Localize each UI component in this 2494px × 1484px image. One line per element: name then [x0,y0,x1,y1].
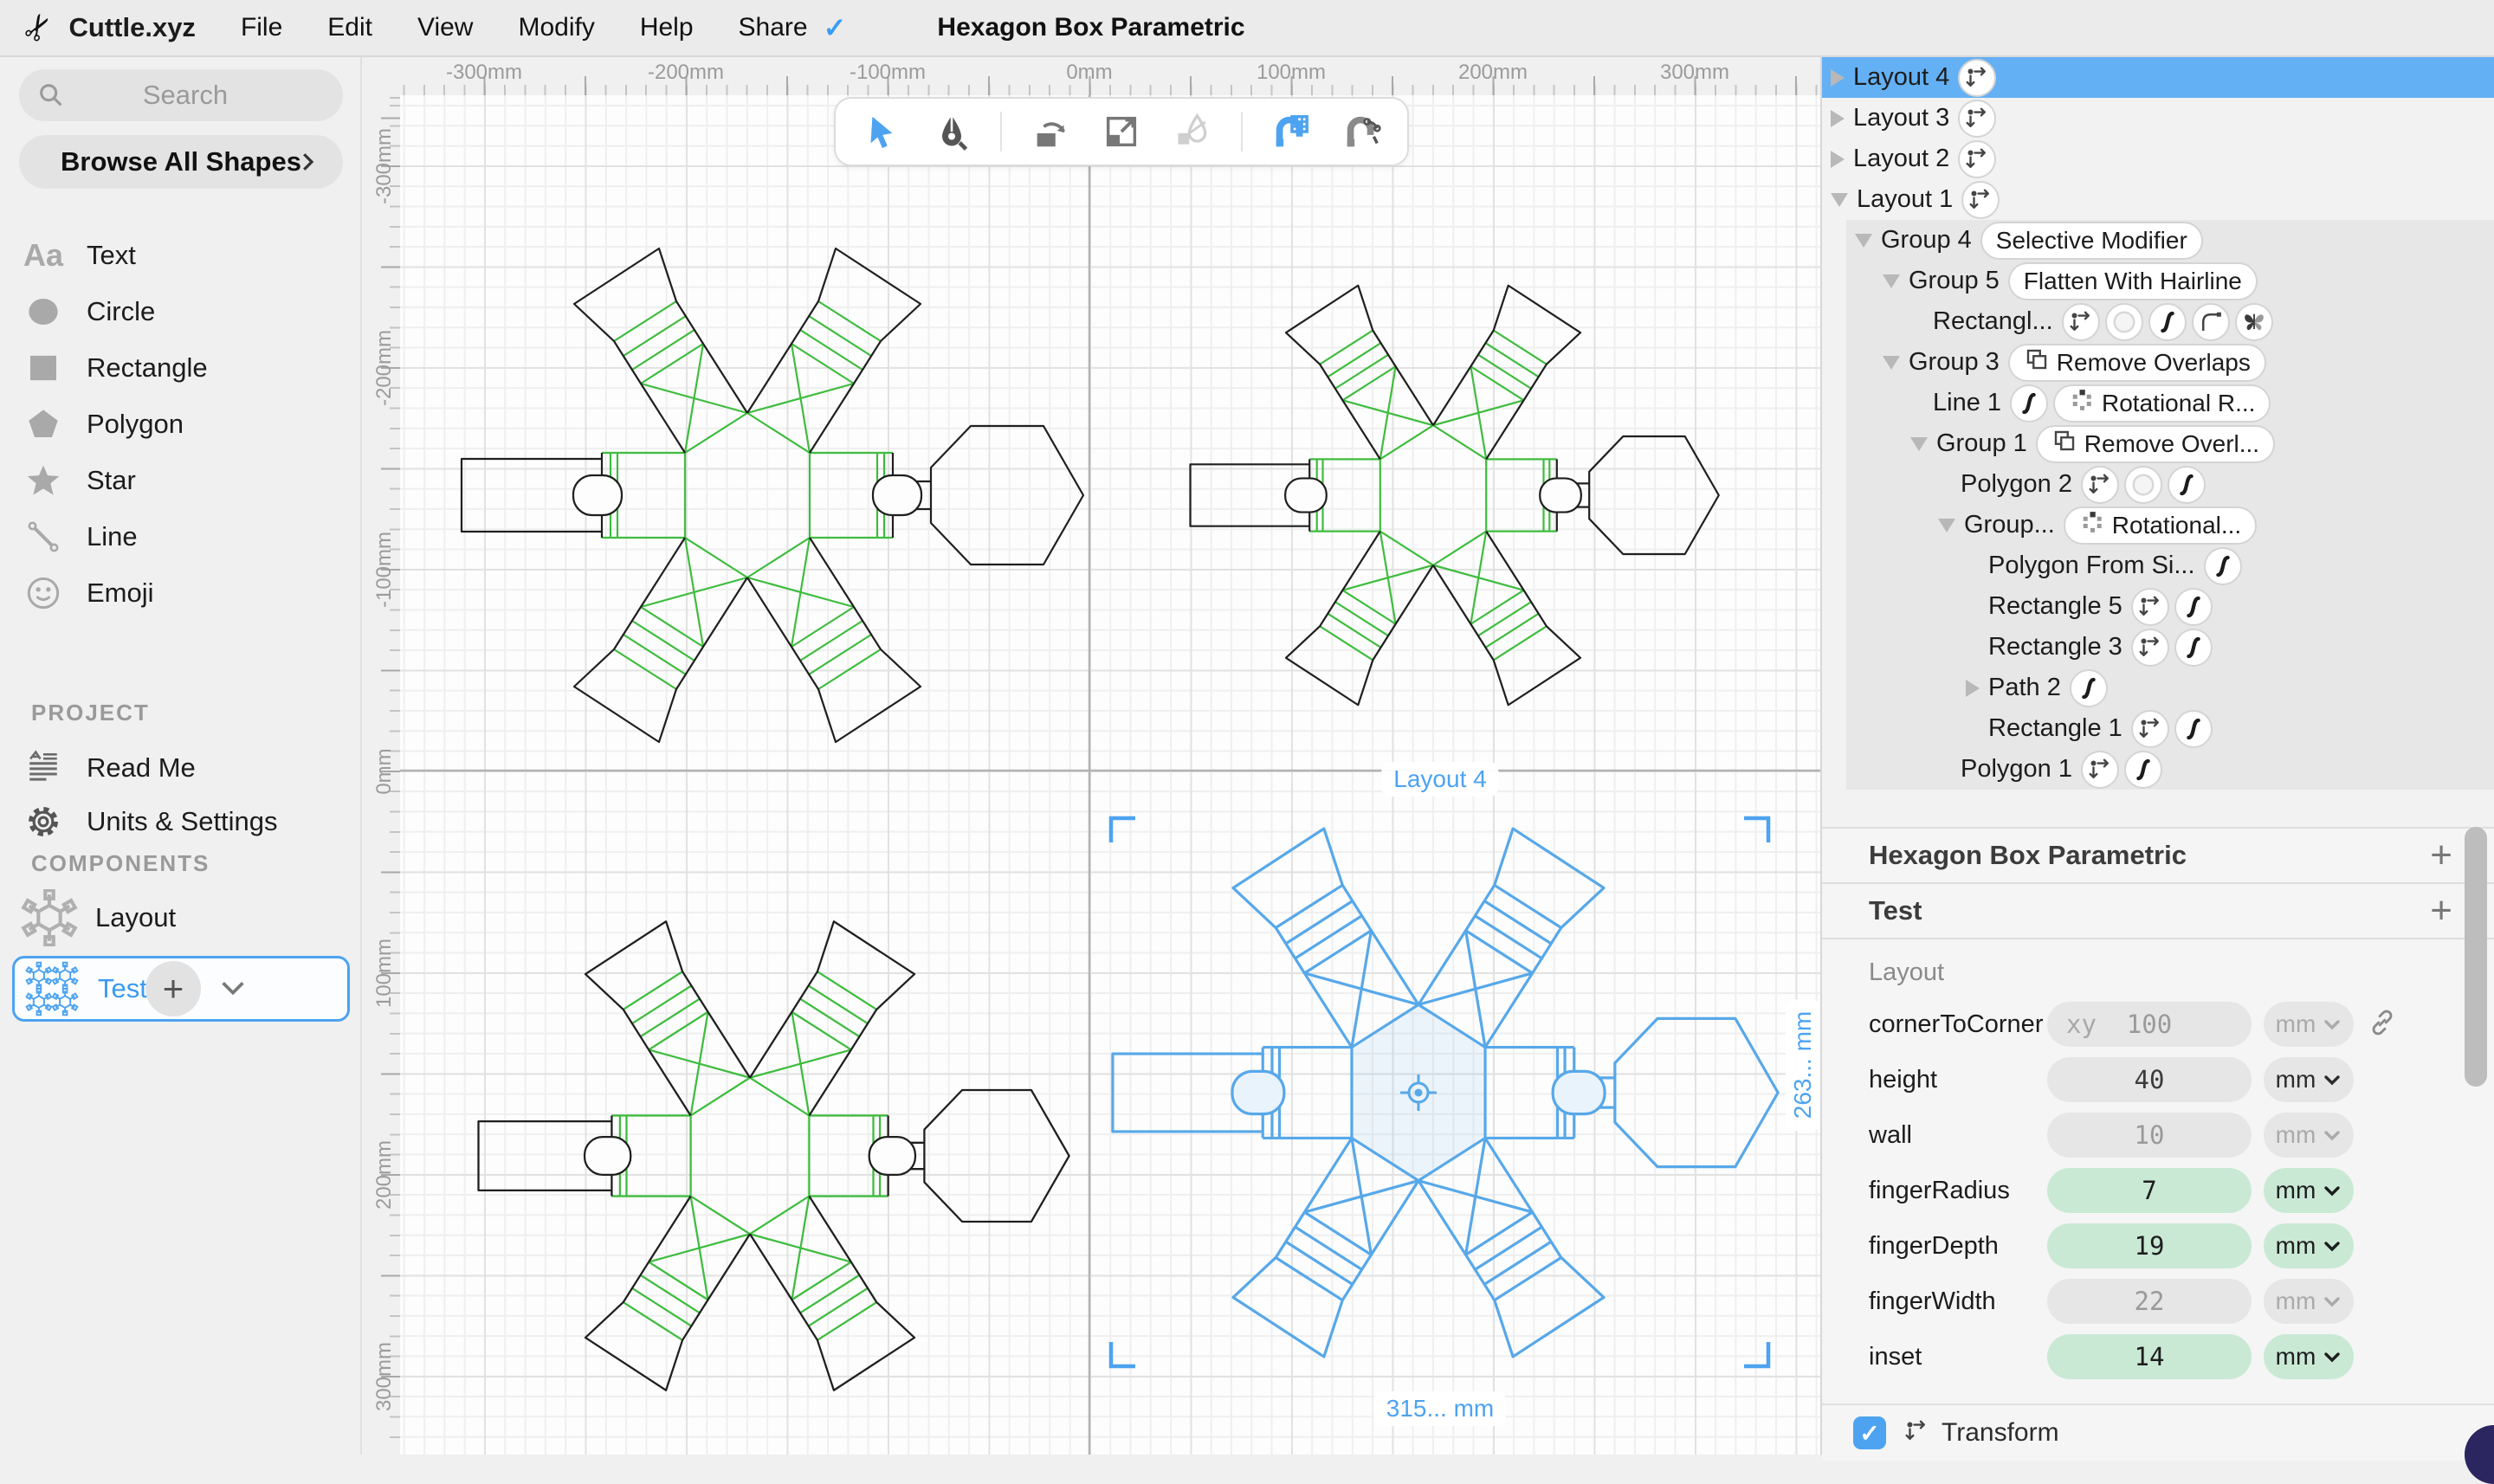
layer-row-rectangle-5[interactable]: Rectangle 5 [1846,586,2494,627]
rotational-icon [2079,509,2105,541]
ruler-top-label: -200mm [648,61,724,85]
param-name: cornerToCorner [1869,1010,2047,1039]
layer-row-layout-3[interactable]: Layout 3 [1822,98,2494,139]
layer-name: Rectangle 1 [1988,714,2122,743]
menu-item-file[interactable]: File [241,13,282,42]
overlap-icon [2051,428,2077,460]
search-placeholder: Search [66,80,305,111]
move-icon-badge[interactable] [1961,181,2000,219]
triangle-expanded-icon[interactable] [1883,274,1900,288]
butterfly-icon-badge[interactable] [2235,303,2273,341]
add-component-button[interactable]: + [145,961,201,1016]
project-item-units-settings[interactable]: Units & Settings [0,795,360,848]
layer-row-group-5[interactable]: Group 5Flatten With Hairline [1846,261,2494,301]
param-row-fingerdepth: fingerDepth19mm [1822,1218,2494,1274]
param-unit: mm [2276,1121,2316,1149]
stroke-icon-badge[interactable] [2148,303,2187,341]
stroke-icon-badge[interactable] [2174,588,2213,626]
move-icon-badge[interactable] [1958,140,1996,178]
rotate-tool-icon[interactable] [1028,109,1073,154]
ruler-left-label: -100mm [372,526,397,613]
section-title: Hexagon Box Parametric [1869,840,2430,871]
menu-item-modify[interactable]: Modify [518,13,594,42]
param-unit-select[interactable]: mm [2264,1113,2354,1158]
param-name: wall [1869,1121,2047,1150]
chevron-down-icon [2323,1066,2342,1094]
ruler-corner [362,57,400,95]
triangle-collapsed-icon[interactable] [1831,151,1845,168]
layer-name: Rectangle 3 [1988,633,2122,661]
menu-item-share[interactable]: Share [739,13,808,42]
net-thumb-gray [12,889,87,946]
modifier-pill[interactable]: Rotational R... [2053,384,2271,423]
line-icon [0,519,87,554]
param-value-input[interactable]: 14 [2047,1334,2252,1379]
chevron-down-icon [2323,1343,2342,1371]
menu-bar: ✂ Cuttle.xyz FileEditViewModifyHelpShare… [0,0,2494,57]
param-name: fingerRadius [1869,1177,2047,1205]
ruler-left-label: -200mm [372,325,397,411]
layer-name: Layout 1 [1857,185,1953,214]
project-item-label: Units & Settings [87,806,278,837]
param-value-input[interactable]: 19 [2047,1223,2252,1268]
param-unit: mm [2276,1010,2316,1038]
layer-name: Path 2 [1988,674,2061,702]
layer-row-polygon-2[interactable]: Polygon 2 [1846,464,2494,505]
ruler-top-label: 200mm [1458,61,1528,85]
transform-row: ✓ Transform [1822,1403,2494,1461]
param-unit: mm [2276,1343,2316,1371]
layer-row-group[interactable]: Group...Rotational... [1846,505,2494,545]
menu-item-view[interactable]: View [417,13,473,42]
layer-name: Rectangl... [1933,307,2053,336]
layer-name: Group 5 [1909,267,2000,295]
param-value-input[interactable]: 40 [2047,1057,2252,1102]
triangle-collapsed-icon[interactable] [1831,110,1845,127]
param-unit-select[interactable]: mm [2264,1168,2354,1213]
modifier-label: Selective Modifier [1996,227,2187,255]
rectangle-icon [0,351,87,385]
chevron-right-icon [294,149,320,175]
param-unit: mm [2276,1066,2316,1094]
layer-name: Group 4 [1881,226,1972,255]
search-input[interactable]: Search [19,69,343,121]
browse-all-shapes-button[interactable]: Browse All Shapes [19,135,343,189]
triangle-expanded-icon[interactable] [1883,356,1900,370]
param-row-cornertocorner: cornerToCornerxy100mm [1822,997,2494,1052]
canvas-artwork[interactable] [400,95,1820,1455]
layer-name: Layout 4 [1853,63,1949,92]
layout-instance-3[interactable] [479,921,1069,1390]
shape-item-text[interactable]: AaText [0,227,360,283]
param-prefix: xy [2066,1010,2097,1039]
chevron-down-icon [2323,1010,2342,1038]
parameter-group-label: Layout [1869,958,2494,997]
param-value: 19 [2135,1231,2165,1261]
param-unit: mm [2276,1287,2316,1315]
modifier-pill[interactable]: Flatten With Hairline [2008,262,2258,300]
link-icon[interactable] [2368,1008,2397,1042]
layer-name: Polygon 1 [1961,755,2072,784]
cuttle-logo-icon[interactable]: ✂ [14,5,63,50]
ruler-top-label: -100mm [850,61,926,85]
param-unit: mm [2276,1177,2316,1204]
ruler-top-label: 100mm [1257,61,1326,85]
layer-row-group-1[interactable]: Group 1Remove Overl... [1846,423,2494,464]
ruler-left-label: 200mm [372,1132,397,1218]
menu-item-edit[interactable]: Edit [327,13,372,42]
gear-icon [0,803,87,840]
ruler-left-label: -300mm [372,123,397,210]
modifier-pill[interactable]: Remove Overl... [2036,425,2275,463]
layer-name: Group... [1964,511,2055,539]
document-title: Hexagon Box Parametric [937,13,1244,42]
layer-row-path-2[interactable]: Path 2 [1846,668,2494,708]
text-icon: Aa [0,237,87,274]
param-value-input[interactable]: xy100 [2047,1002,2252,1047]
move-icon-badge[interactable] [2131,588,2169,626]
ruler-top-label: 300mm [1660,61,1729,85]
param-value-input[interactable]: 10 [2047,1113,2252,1158]
pen-tool-icon[interactable] [929,109,974,154]
shape-item-line[interactable]: Line [0,508,360,565]
component-item-label: Test [98,973,147,1004]
chevron-down-icon [2323,1287,2342,1315]
chevron-down-icon [2323,1121,2342,1149]
param-value: 100 [2127,1010,2172,1039]
right-panel: Layout 4Layout 3Layout 2Layout 1Group 4S… [1820,57,2494,1455]
menu-item-help[interactable]: Help [640,13,694,42]
ruler-horizontal: -300mm-200mm-100mm0mm100mm200mm300mm [362,57,1820,95]
shape-item-label: Text [87,240,136,271]
param-unit-select[interactable]: mm [2264,1279,2354,1324]
shape-item-label: Polygon [87,409,184,440]
project-section-label: PROJECT [31,700,150,726]
stroke-icon-badge[interactable] [2168,466,2206,504]
ruler-top-label: 0mm [1066,61,1112,85]
menu-items: FileEditViewModifyHelpShare [196,13,808,42]
stroke-icon-badge[interactable] [2070,669,2108,707]
move-icon-badge[interactable] [2081,751,2119,789]
modifier-label: Rotational R... [2102,390,2255,417]
shape-item-label: Line [87,521,138,552]
param-row-inset: inset14mm [1822,1329,2494,1384]
snap-grid-tool-icon[interactable] [1269,109,1314,154]
snap-point-tool-icon[interactable] [1340,109,1385,154]
component-item-layout[interactable]: Layout [12,885,350,951]
layer-name: Polygon From Si... [1988,552,2195,580]
move-icon-badge[interactable] [2081,466,2119,504]
canvas-toolbar [834,97,1409,166]
shape-item-label: Star [87,465,136,496]
layer-subtree: Group 4Selective ModifierGroup 5Flatten … [1846,220,2494,790]
layer-row-layout-1[interactable]: Layout 1 [1822,179,2494,220]
param-name: inset [1869,1343,2047,1371]
rotational-icon [2069,387,2095,419]
ruler-left-label: 300mm [372,1333,397,1420]
selection-height-label[interactable]: 263... mm [1786,999,1820,1131]
ruler-left-label: 100mm [372,930,397,1016]
move-icon-badge[interactable] [1958,59,1996,97]
ruler-left-label: 0mm [372,728,397,815]
chevron-down-icon [2323,1232,2342,1260]
layer-name: Rectangle 5 [1988,592,2122,621]
stroke-icon-badge[interactable] [2124,751,2162,789]
overlap-icon [2024,346,2050,378]
layout-instance-2[interactable] [1191,286,1719,706]
shape-item-rectangle[interactable]: Rectangle [0,339,360,396]
panel-scrollbar[interactable] [2465,827,2487,1087]
triangle-collapsed-icon[interactable] [1831,69,1845,87]
fill-icon-badge[interactable] [2124,466,2162,504]
layer-name: Group 1 [1936,429,2027,458]
parameter-list: cornerToCornerxy100mmheight40mmwall10mmf… [1822,997,2494,1384]
triangle-expanded-icon[interactable] [1855,234,1872,248]
move-icon-badge[interactable] [2131,629,2169,667]
left-sidebar: Search Browse All Shapes AaTextCircleRec… [0,57,362,1455]
param-name: fingerWidth [1869,1287,2047,1316]
layer-row-layout-2[interactable]: Layout 2 [1822,139,2494,179]
fill-icon-badge[interactable] [2105,303,2143,341]
shape-item-circle[interactable]: Circle [0,283,360,339]
layer-name: Line 1 [1933,389,2001,417]
move-icon [1903,1418,1929,1449]
layout-instance-4-selected[interactable] [1113,829,1778,1357]
shape-item-label: Rectangle [87,352,208,384]
modifier-label: Rotational... [2112,512,2241,539]
layout-instance-1[interactable] [462,248,1083,742]
stroke-icon-badge[interactable] [2010,384,2048,423]
modifier-label: Flatten With Hairline [2024,268,2242,295]
param-row-wall: wall10mm [1822,1107,2494,1163]
triangle-expanded-icon[interactable] [1910,437,1928,451]
add-parameter-button[interactable]: + [2430,889,2452,932]
move-icon-badge[interactable] [1958,100,1996,138]
emoji-icon [0,576,87,610]
properties-panel: Hexagon Box Parametric + Test + Layout c… [1822,827,2494,1461]
param-value: 40 [2135,1065,2165,1094]
component-section-header[interactable]: Test + [1822,882,2494,938]
star-icon [0,463,87,498]
layer-name: Group 3 [1909,348,2000,377]
shape-item-label: Emoji [87,577,154,609]
param-unit: mm [2276,1232,2316,1260]
layer-row-layout-4[interactable]: Layout 4 [1822,57,2494,98]
param-name: fingerDepth [1869,1232,2047,1261]
param-unit-select[interactable]: mm [2264,1002,2354,1047]
toolbar-separator [1000,112,1002,152]
section-title: Test [1869,895,2430,926]
select-tool-icon[interactable] [858,109,903,154]
layer-name: Layout 2 [1853,145,1949,173]
triangle-expanded-icon[interactable] [1938,519,1955,532]
param-row-height: height40mm [1822,1052,2494,1107]
param-value: 14 [2135,1342,2165,1371]
layer-row-rectangl[interactable]: Rectangl... [1846,301,2494,342]
ruler-vertical: -300mm-200mm-100mm0mm100mm200mm300mm [362,95,400,1455]
corner-icon-badge[interactable] [2192,303,2230,341]
layer-row-rectangle-1[interactable]: Rectangle 1 [1846,708,2494,749]
toolbar-separator [1241,112,1243,152]
modifier-label: Remove Overl... [2084,430,2259,458]
modifier-pill[interactable]: Rotational... [2064,506,2257,545]
shape-item-label: Circle [87,296,155,327]
layer-row-group-3[interactable]: Group 3Remove Overlaps [1846,342,2494,383]
modifier-pill[interactable]: Remove Overlaps [2008,344,2266,382]
param-unit-select[interactable]: mm [2264,1223,2354,1268]
selected-component-label[interactable]: Layout 4 [1381,762,1498,797]
stroke-icon-badge[interactable] [2174,710,2213,748]
shape-item-star[interactable]: Star [0,452,360,508]
shape-item-emoji[interactable]: Emoji [0,565,360,621]
project-item-read-me[interactable]: Read Me [0,741,360,795]
layer-name: Polygon 2 [1961,470,2072,499]
transform-label: Transform [1942,1418,2059,1448]
search-icon [36,81,66,110]
move-icon-badge[interactable] [2062,303,2100,341]
add-component-chevron-icon[interactable] [218,977,248,999]
ruler-top-label: -300mm [446,61,522,85]
modifier-pill[interactable]: Selective Modifier [1980,222,2203,260]
move-icon-badge[interactable] [2131,710,2169,748]
component-item-label: Layout [95,902,176,933]
transform-pen-tool-icon [1170,109,1215,154]
param-name: height [1869,1066,2047,1094]
layer-tree: Layout 4Layout 3Layout 2Layout 1Group 4S… [1822,57,2494,790]
triangle-collapsed-icon[interactable] [1966,680,1980,697]
param-row-fingerwidth: fingerWidth22mm [1822,1274,2494,1329]
layer-row-group-4[interactable]: Group 4Selective Modifier [1846,220,2494,261]
selection-width-label[interactable]: 315... mm [1374,1391,1506,1426]
chevron-down-icon [2323,1177,2342,1204]
param-value-input[interactable]: 7 [2047,1168,2252,1213]
scale-tool-icon[interactable] [1099,109,1144,154]
transform-checkbox[interactable]: ✓ [1853,1416,1886,1449]
shape-list: AaTextCircleRectanglePolygonStarLineEmoj… [0,227,360,621]
stroke-icon-badge[interactable] [2174,629,2213,667]
stroke-icon-badge[interactable] [2204,547,2242,585]
shape-item-polygon[interactable]: Polygon [0,396,360,452]
net-thumb-blue [15,960,89,1017]
layer-row-polygon-from-si[interactable]: Polygon From Si... [1846,545,2494,586]
param-row-fingerradius: fingerRadius7mm [1822,1163,2494,1218]
app-name[interactable]: Cuttle.xyz [69,12,196,43]
component-section-header[interactable]: Hexagon Box Parametric + [1822,827,2494,882]
layer-row-line-1[interactable]: Line 1Rotational R... [1846,383,2494,423]
param-unit-select[interactable]: mm [2264,1334,2354,1379]
share-check-icon: ✓ [824,11,847,44]
layer-row-polygon-1[interactable]: Polygon 1 [1846,749,2494,790]
polygon-icon [0,407,87,442]
project-item-label: Read Me [87,752,196,784]
layer-name: Layout 3 [1853,104,1949,132]
add-parameter-button[interactable]: + [2430,834,2452,877]
param-value: 22 [2135,1287,2165,1316]
modifier-label: Remove Overlaps [2057,349,2251,377]
param-value-input[interactable]: 22 [2047,1279,2252,1324]
circle-icon [0,294,87,329]
param-value: 7 [2142,1176,2156,1205]
readme-icon [0,750,87,786]
layer-row-rectangle-3[interactable]: Rectangle 3 [1846,627,2494,668]
param-unit-select[interactable]: mm [2264,1057,2354,1102]
components-section-label: COMPONENTS [31,850,210,877]
param-value: 10 [2135,1120,2165,1150]
triangle-expanded-icon[interactable] [1831,193,1848,207]
